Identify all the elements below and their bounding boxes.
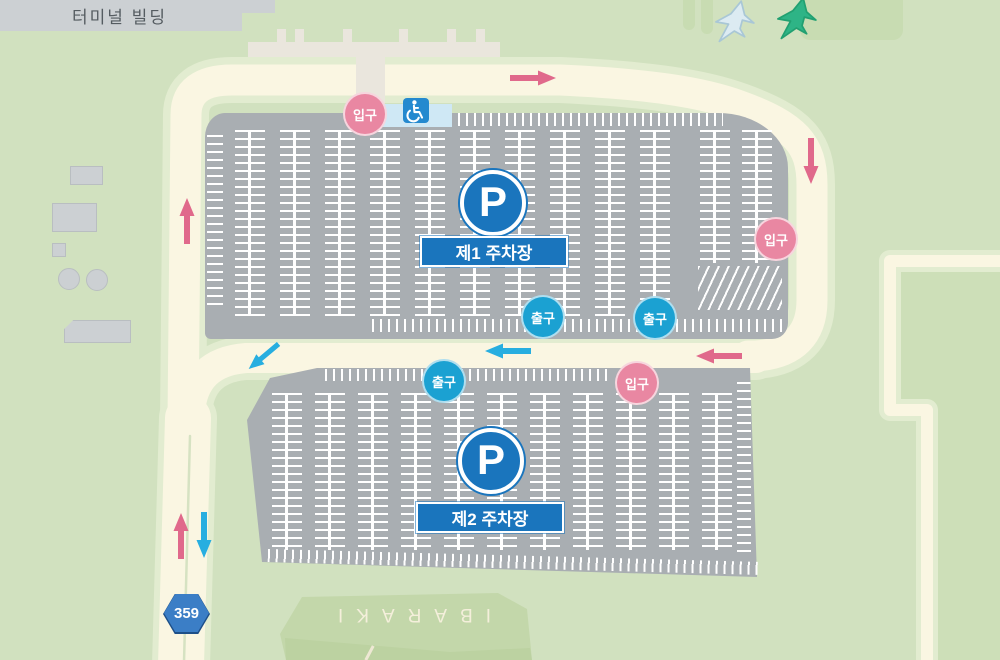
terminal-walkway	[476, 29, 485, 43]
terminal-walkway	[399, 29, 408, 43]
building	[52, 203, 97, 232]
parking-stall-row	[702, 393, 732, 550]
terminal-walkway	[447, 29, 456, 43]
entrance-label: 입구	[764, 230, 788, 249]
arrow-left-icon	[483, 342, 531, 360]
parking-stall-row	[280, 130, 310, 316]
terminal-building: 터미널 빌딩	[0, 0, 275, 31]
parking-stall-row	[325, 130, 355, 316]
parking-stall-row	[315, 393, 345, 550]
ground-area-ibaraki: IBARAKI	[280, 593, 533, 660]
building	[70, 166, 103, 185]
exit-label: 출구	[432, 372, 456, 391]
parking-stall-row	[659, 393, 689, 550]
terminal-walkway	[277, 29, 286, 43]
lot2-label: 제2 주차장	[416, 502, 564, 533]
arrow-down-icon	[802, 138, 820, 186]
parking-stall-row	[358, 393, 388, 550]
parking-symbol-lot2: P	[458, 428, 524, 494]
parking-stall-row	[235, 130, 265, 316]
entrance-label: 입구	[625, 374, 649, 393]
hatched-parking-area	[698, 266, 782, 310]
parking-stall-row	[616, 393, 646, 550]
building	[52, 243, 66, 257]
parking-rows	[235, 130, 675, 316]
entrance-marker: 입구	[343, 92, 387, 136]
parking-stall-row	[272, 393, 302, 550]
airplane-green-icon	[766, 0, 822, 43]
parking-stall-row	[415, 130, 445, 316]
wheelchair-icon	[403, 98, 429, 123]
parking-stall-row	[370, 130, 400, 316]
arrow-right-icon	[510, 69, 558, 87]
edge-parking-row	[450, 113, 723, 126]
arrow-down-icon	[195, 512, 213, 560]
edge-parking-row	[372, 319, 782, 332]
exit-marker: 출구	[633, 296, 677, 340]
entrance-marker: 입구	[754, 217, 798, 261]
parking-stall-row	[550, 130, 580, 316]
exit-marker: 출구	[422, 359, 466, 403]
parking-stall-row	[573, 393, 603, 550]
accessible-parking-strip	[377, 104, 452, 127]
edge-parking-row	[737, 382, 751, 552]
tank-building	[86, 269, 108, 291]
parking-stall-row	[595, 130, 625, 316]
parking-stall-row	[700, 130, 730, 263]
exit-label: 출구	[643, 309, 667, 328]
building	[64, 320, 131, 343]
ground-label: IBARAKI	[308, 603, 508, 625]
edge-parking-row	[207, 135, 223, 305]
airplane-light-icon	[704, 0, 760, 46]
terminal-label: 터미널 빌딩	[72, 3, 203, 28]
arrow-left-icon	[694, 347, 742, 365]
exit-label: 출구	[531, 308, 555, 327]
entrance-marker: 입구	[615, 361, 659, 405]
edge-parking-row	[325, 369, 612, 381]
terminal-walkway	[343, 29, 352, 43]
exit-marker: 출구	[521, 295, 565, 339]
arrow-up-icon	[178, 196, 196, 244]
parking-stall-row	[640, 130, 670, 316]
entrance-label: 입구	[353, 105, 377, 124]
terminal-walkway	[295, 29, 304, 43]
lot1-label: 제1 주차장	[420, 236, 568, 267]
tank-building	[58, 268, 80, 290]
arrow-up-icon	[172, 511, 190, 559]
parking-symbol-lot1: P	[460, 170, 526, 236]
airport-parking-map: 터미널 빌딩 IBARAKI P 제1 주차장 P	[0, 0, 1000, 660]
